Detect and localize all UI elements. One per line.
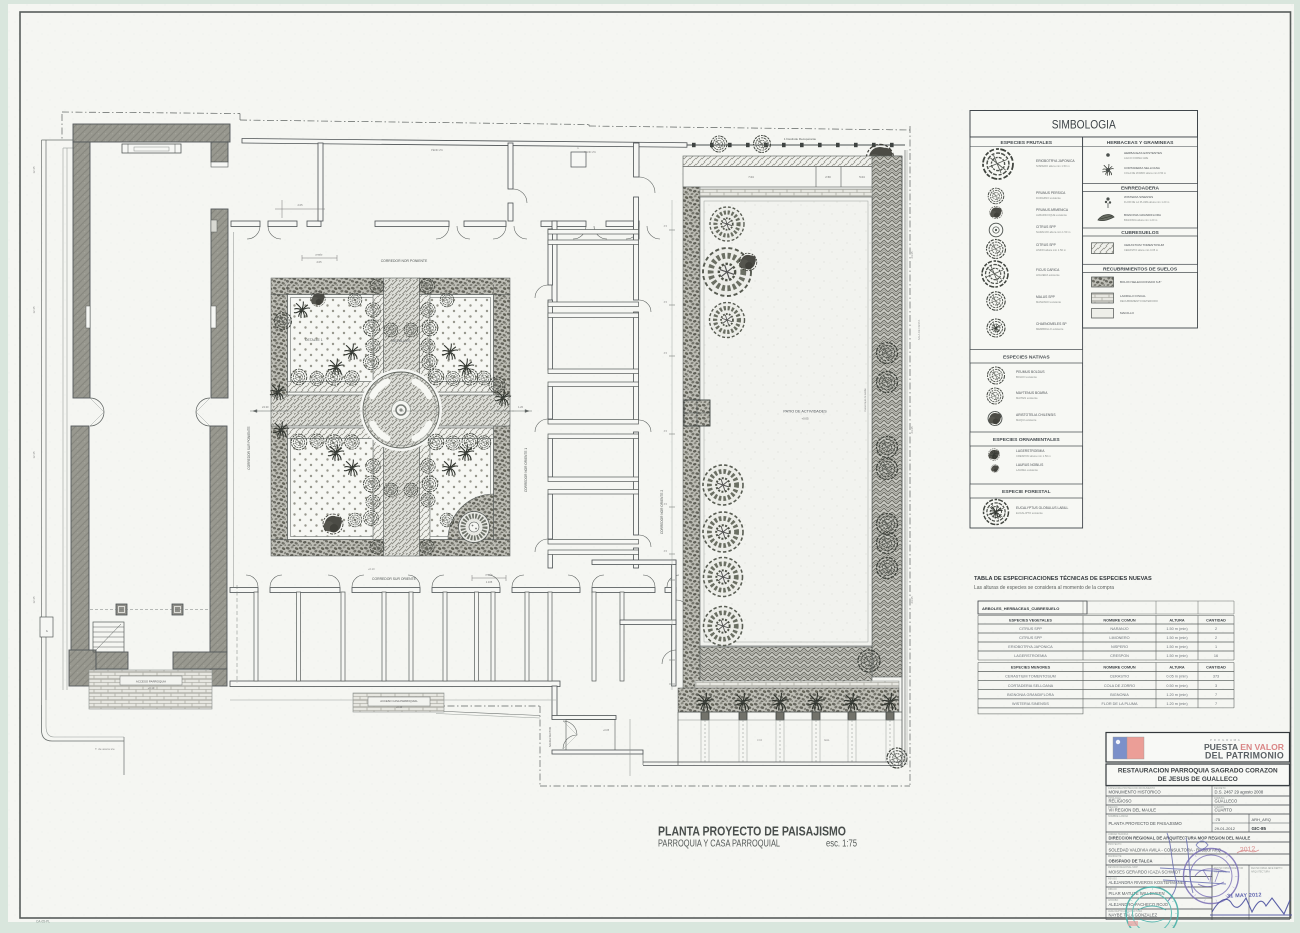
svg-text:CANTIDAD: CANTIDAD [1206,666,1226,670]
svg-text:MAICILLO: MAICILLO [1120,311,1135,315]
svg-text:24.35: 24.35 [910,596,914,603]
svg-text:+0.05: +0.05 [603,729,610,732]
svg-text:DETALLES: DETALLES [391,339,411,343]
svg-text:MAITEN existente: MAITEN existente [1016,396,1038,400]
svg-text:1.20 m (min): 1.20 m (min) [1166,693,1188,697]
svg-text:NOMBRE COMUN: NOMBRE COMUN [1103,618,1136,622]
svg-text:MANZANO existente: MANZANO existente [1036,300,1061,304]
svg-text:DIRECCION REGIONAL DE ARQUITEC: DIRECCION REGIONAL DE ARQUITECTURA MOP R… [1109,836,1251,841]
svg-text:GAL: GAL [824,738,830,742]
svg-text:3: 3 [1215,684,1217,688]
svg-text:prado: prado [486,573,493,577]
svg-text:DETALLE 2: DETALLE 2 [368,319,385,323]
svg-text:HIGUERA existente: HIGUERA existente [1036,273,1060,277]
svg-text:ERIOBOTRYA JAPONICA: ERIOBOTRYA JAPONICA [1008,645,1053,649]
svg-text:LIMONERO: LIMONERO [1109,636,1129,640]
svg-text:1.20 m (min): 1.20 m (min) [1166,702,1188,706]
svg-text:CORREDOR NOR PONIENTE: CORREDOR NOR PONIENTE [381,259,428,263]
svg-text:PATIO DE ACTIVIDADES: PATIO DE ACTIVIDADES [783,410,827,414]
svg-text:CERASTIO: CERASTIO [1110,675,1129,679]
svg-text:esc. 1:75: esc. 1:75 [826,839,857,850]
svg-text:LAGERSTROEMIA: LAGERSTROEMIA [1016,449,1045,453]
svg-text:BIGNONIA altura min 1.20 m: BIGNONIA altura min 1.20 m [1124,218,1157,222]
svg-text:EUCALIPTO existente: EUCALIPTO existente [1016,511,1043,515]
svg-text:12.35: 12.35 [32,596,36,603]
svg-text:MONUMENTO HISTORICO: MONUMENTO HISTORICO [1109,790,1162,795]
svg-text:prado: prado [316,253,323,257]
svg-text:BIGNONIA: BIGNONIA [1110,693,1129,697]
svg-text:PROYECTO: PROYECTO [1108,843,1122,846]
svg-text:+0.10: +0.10 [368,567,375,571]
svg-text:LADRILLO FISCAL: LADRILLO FISCAL [1120,294,1146,298]
svg-text:CORREDOR SUR PONIENTE: CORREDOR SUR PONIENTE [247,426,251,469]
svg-text:LAGERSTROEMIA: LAGERSTROEMIA [1014,654,1047,658]
svg-text:I: I [1184,875,1188,876]
svg-text:CHAENOMELES SP: CHAENOMELES SP [1036,322,1067,326]
svg-text:RECUBRIMIENTOS DE SUELOS: RECUBRIMIENTOS DE SUELOS [1103,266,1178,272]
svg-text:DEL PATRIMONIO: DEL PATRIMONIO [1205,751,1284,761]
svg-text:BOLON SELECCIONADO 6-8": BOLON SELECCIONADO 6-8" [1120,280,1161,284]
svg-text:CUARTO: CUARTO [1215,808,1233,813]
svg-text:MALUS SPP: MALUS SPP [1036,295,1056,299]
svg-text:1.50 m (min): 1.50 m (min) [1166,636,1188,640]
svg-text:1: 1 [1215,645,1217,649]
svg-text:OBISPADO DE TALCA: OBISPADO DE TALCA [1109,859,1153,864]
svg-text:1.20: 1.20 [518,405,524,409]
svg-text:12.35: 12.35 [32,166,36,173]
svg-text:PRUNUS ARMENICA: PRUNUS ARMENICA [1036,208,1069,212]
svg-text:LIMON altura min 1.50 m: LIMON altura min 1.50 m [1036,248,1067,252]
svg-text:COLA DE ZORRO altura min 0.5: COLA DE ZORRO altura min 0.50 m [1124,171,1166,175]
svg-text:CORREDOR NOR ORIENTE 2: CORREDOR NOR ORIENTE 2 [660,490,664,535]
svg-text:1.50 m (min): 1.50 m (min) [1166,627,1188,631]
svg-text:CORTADERIA SELLOANA: CORTADERIA SELLOANA [1008,684,1054,688]
svg-text:CITRUS SPP: CITRUS SPP [1019,636,1042,640]
svg-text:CRESPON: CRESPON [1110,654,1129,658]
svg-text:ARBOLES_HERBACEAS_CUBRESUELO: ARBOLES_HERBACEAS_CUBRESUELO [982,606,1059,611]
svg-text:7: 7 [1215,702,1217,706]
svg-text:SALA DE FIESTA: SALA DE FIESTA [917,320,921,341]
svg-text:CUBRESUELOS: CUBRESUELOS [1121,230,1159,236]
svg-text:HERBACEAS Y GRAMINEAS: HERBACEAS Y GRAMINEAS [1107,140,1174,146]
svg-text:ESPECIES MENORES: ESPECIES MENORES [1011,666,1051,670]
svg-text:COLA DE ZORRO: COLA DE ZORRO [1104,684,1135,688]
svg-text:0.50 m (min): 0.50 m (min) [1166,684,1188,688]
svg-text:2.05: 2.05 [316,260,322,264]
svg-text:CA-05-PL: CA-05-PL [36,920,50,924]
svg-text:CITRUS SPP: CITRUS SPP [1036,225,1057,229]
svg-text:PARROQUIA Y CASA PARROQUIAL: PARROQUIA Y CASA PARROQUIAL [658,839,780,850]
svg-text:MOISES GERARDO ICAZA SCHMIDT: MOISES GERARDO ICAZA SCHMIDT [1109,870,1182,875]
svg-text:FLOR DE LA PLUMA: FLOR DE LA PLUMA [1101,702,1138,706]
svg-text:ACCESO PARROQUIA: ACCESO PARROQUIA [136,680,166,684]
svg-text:DURAZNO existente: DURAZNO existente [1036,196,1061,200]
svg-text:ESPECIES ORNAMENTALES: ESPECIES ORNAMENTALES [993,437,1060,443]
svg-text:I: I [1234,876,1238,877]
svg-text:NARANJO: NARANJO [1110,627,1128,631]
svg-text:1.50 m (min): 1.50 m (min) [1166,654,1188,658]
svg-text:BIGNONIA GRANDIFLORA: BIGNONIA GRANDIFLORA [1124,213,1161,217]
svg-text:CRESPON altura min 1.50 m: CRESPON altura min 1.50 m [1016,454,1052,458]
svg-text:WISTERIA SINENSIS: WISTERIA SINENSIS [1012,702,1049,706]
svg-text:DETALLE 1: DETALLE 1 [305,338,323,342]
svg-text:A ECO FORMA GRE: A ECO FORMA GRE [1124,156,1148,160]
svg-text:3.04: 3.04 [757,738,763,742]
svg-text:BIGNONIA GRANDIFLORA: BIGNONIA GRANDIFLORA [1007,693,1054,697]
svg-text:ENRREDADERA: ENRREDADERA [1121,186,1160,192]
svg-text:ALBARICOQUE existente: ALBARICOQUE existente [1036,213,1067,217]
svg-text:VII REGION DEL MAULE: VII REGION DEL MAULE [1109,808,1157,813]
svg-text:+0.10: +0.10 [148,686,155,690]
svg-text:NISPERO: NISPERO [1111,645,1128,649]
svg-text:ALTURA: ALTURA [1169,666,1185,670]
svg-text:HERBACEAS EXISTENTES: HERBACEAS EXISTENTES [1124,151,1162,155]
svg-text:CITRUS SPP: CITRUS SPP [1019,627,1042,631]
svg-text:1.105: 1.105 [486,580,493,584]
svg-text:ESPECIES NATIVAS: ESPECIES NATIVAS [1003,354,1050,360]
svg-text:2: 2 [1215,627,1217,631]
svg-text:CERASTIUM TOMENTOSUM: CERASTIUM TOMENTOSUM [1005,675,1056,679]
svg-text:ESPECIES FRUTALES: ESPECIES FRUTALES [1001,140,1053,146]
svg-text:7: 7 [1215,693,1217,697]
svg-text:CORTADERIA SELLOANA: CORTADERIA SELLOANA [1124,166,1160,170]
svg-text:LAUREL existente: LAUREL existente [1016,468,1038,472]
svg-text:ARISTOTELIA CHILENSIS: ARISTOTELIA CHILENSIS [1016,413,1056,417]
svg-text:MAYTENUS BOARIA: MAYTENUS BOARIA [1016,391,1048,395]
svg-text:31 MAY 2012: 31 MAY 2012 [1227,892,1262,899]
svg-text:ESPECIE FORESTAL: ESPECIE FORESTAL [1002,489,1051,495]
svg-text:1 Deslinde Recuperante: 1 Deslinde Recuperante [784,137,817,141]
svg-text:+0.05: +0.05 [801,417,809,421]
svg-text:GIC-85: GIC-85 [1252,826,1267,831]
svg-text:PLANTA PROYECTO DE PAISAJISMO: PLANTA PROYECTO DE PAISAJISMO [1109,821,1183,826]
svg-text:NISPERO altura min 1.50 m: NISPERO altura min 1.50 m [1036,164,1070,168]
svg-text:MAQUI existente: MAQUI existente [1016,418,1037,422]
svg-text:ACCESO CASA PARROQUIAL: ACCESO CASA PARROQUIAL [380,699,418,703]
svg-text:2.50: 2.50 [825,175,831,179]
svg-text:CORREDOR SUR ORIENTE: CORREDOR SUR ORIENTE [372,577,417,581]
svg-text:2: 2 [1215,636,1217,640]
svg-text:NOMBRE COMUN: NOMBRE COMUN [1103,666,1136,670]
svg-text:PRUNUS PERSICA: PRUNUS PERSICA [1036,191,1066,195]
svg-text:FICUS CARICA: FICUS CARICA [1036,268,1060,272]
svg-text:RELIGIOSO: RELIGIOSO [1109,799,1133,804]
svg-text:SALIDA SECTOR: SALIDA SECTOR [548,727,552,748]
svg-text:ARQUITECTURA: ARQUITECTURA [1251,871,1270,874]
svg-text:24.35: 24.35 [910,426,914,433]
svg-text:ARH_ARQ: ARH_ARQ [1252,817,1271,822]
svg-text:PEUMUS BOLDUS: PEUMUS BOLDUS [1016,370,1045,374]
svg-text:PLANTA PROYECTO DE PAISAJISMO: PLANTA PROYECTO DE PAISAJISMO [658,824,846,839]
svg-text:CERASTIUM TOMENTOSUM: CERASTIUM TOMENTOSUM [1124,243,1165,247]
svg-text:GUALLECO: GUALLECO [1215,799,1239,804]
svg-text:0.05 m (min): 0.05 m (min) [1166,675,1188,679]
svg-text:T. de acera s/e: T. de acera s/e [95,747,115,751]
svg-text:P: P [45,630,49,632]
svg-text:TABLA DE ESPECIFICACIONES TÉCN: TABLA DE ESPECIFICACIONES TÉCNICAS DE ES… [974,574,1152,582]
svg-text:MEMBRILLO existente: MEMBRILLO existente [1036,327,1064,331]
svg-text:ESPECIES VEGETALES: ESPECIES VEGETALES [1009,618,1052,622]
svg-text:RESTAURACION PARROQUIA SAGRADO: RESTAURACION PARROQUIA SAGRADO CORAZON [1118,768,1278,775]
svg-text:RECUBRIMIENTO DETERIORO: RECUBRIMIENTO DETERIORO [1120,299,1158,303]
svg-text:24.30: 24.30 [262,405,269,409]
svg-text:ALEJANDRO PACHECO ROJO: ALEJANDRO PACHECO ROJO [1109,902,1169,907]
svg-text:373: 373 [1213,675,1219,679]
svg-text:5.04: 5.04 [859,175,865,179]
svg-text::75: :75 [1215,817,1221,822]
svg-text:WISTERIA SINENSIS: WISTERIA SINENSIS [1124,195,1153,199]
svg-text:7.04: 7.04 [748,175,754,179]
svg-text:nuevo muro de adobe: nuevo muro de adobe [864,388,867,412]
svg-text:CITRUS SPP: CITRUS SPP [1036,243,1057,247]
svg-text:2.05: 2.05 [297,203,303,207]
svg-text:EUCALYPTUS GLOBULUS LABILL: EUCALYPTUS GLOBULUS LABILL [1016,506,1069,510]
svg-text:BOLDO existente: BOLDO existente [1016,375,1037,379]
svg-text:Las alturas de especies se con: Las alturas de especies se considera al … [974,585,1114,591]
svg-text:FLOR DE LA PLUMA altura min: FLOR DE LA PLUMA altura min 1.20 m [1124,200,1169,204]
svg-text:CANTIDAD: CANTIDAD [1206,618,1226,622]
svg-text:12.35: 12.35 [32,306,36,313]
svg-text:NOMBRE LAMINA: NOMBRE LAMINA [1108,815,1128,818]
svg-text:24.35: 24.35 [910,251,914,258]
svg-text:1.50 m (min): 1.50 m (min) [1166,645,1188,649]
svg-text:ALTURA: ALTURA [1169,618,1185,622]
svg-text:LAURUS NOBILIS: LAURUS NOBILIS [1016,463,1044,467]
svg-text:2012: 2012 [1240,846,1256,854]
svg-text:CERASTIO altura min 0.05 m: CERASTIO altura min 0.05 m [1124,248,1158,252]
svg-text:29-01-2012: 29-01-2012 [1215,826,1236,831]
svg-text:NARANJO altura min 1.50 m: NARANJO altura min 1.50 m [1036,230,1071,234]
svg-text:+0.10: +0.10 [396,706,403,709]
svg-text:CORREDOR NOR ORIENTE 1: CORREDOR NOR ORIENTE 1 [524,448,528,493]
svg-text:D.S. 2467 29 agosto 2008: D.S. 2467 29 agosto 2008 [1215,790,1264,795]
svg-text:12.35: 12.35 [32,451,36,458]
svg-text:ERIOBOTRYA JAPONICA: ERIOBOTRYA JAPONICA [1036,159,1075,163]
svg-text:16: 16 [1214,654,1218,658]
svg-text:PEND 2%: PEND 2% [431,148,443,152]
svg-text:SIMBOLOGIA: SIMBOLOGIA [1052,120,1116,132]
svg-text:DE JESUS DE GUALLECO: DE JESUS DE GUALLECO [1158,776,1238,783]
svg-text:PEND 2%: PEND 2% [584,150,596,154]
